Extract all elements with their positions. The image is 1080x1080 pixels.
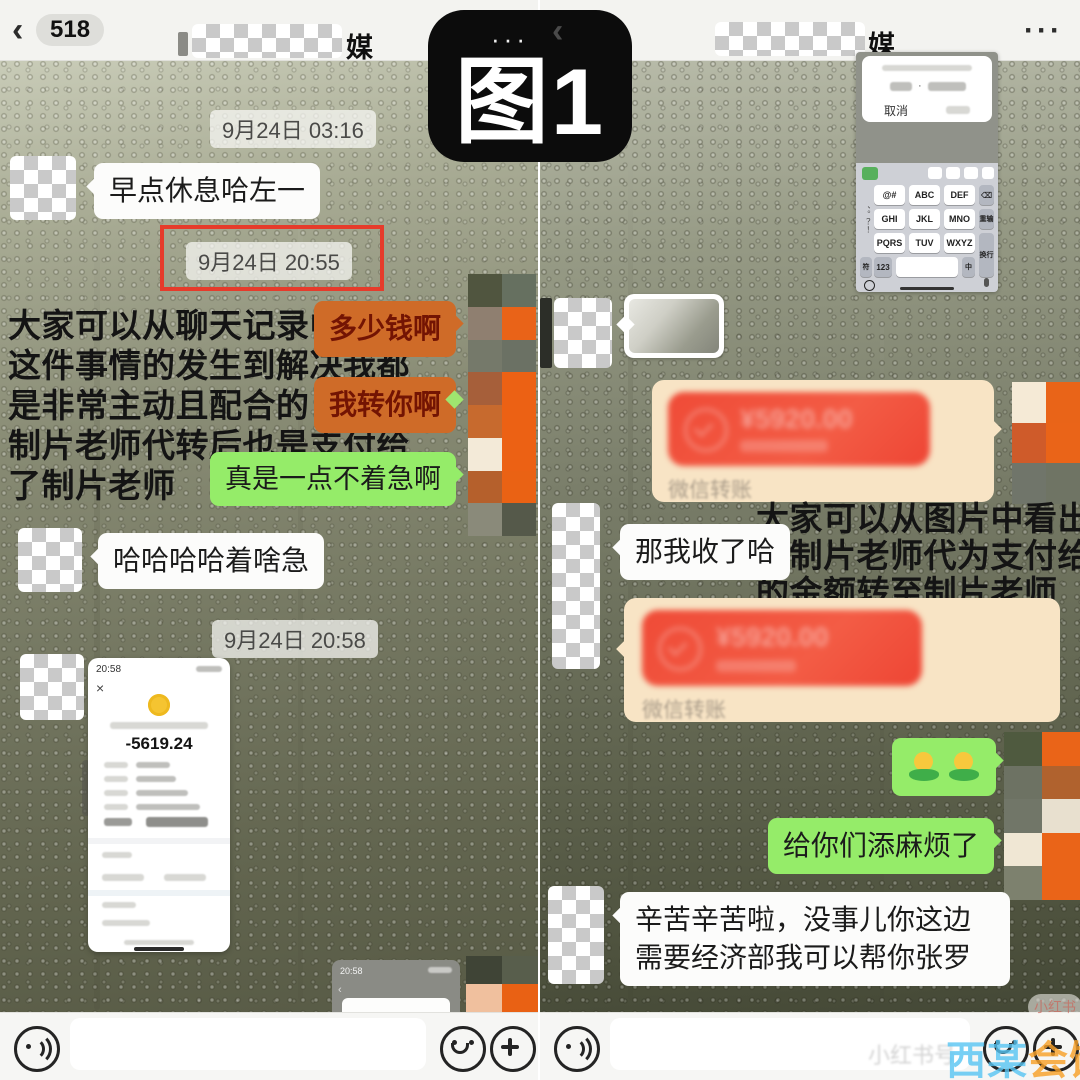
figure-label-badge: ··· 图1 xyxy=(428,10,632,162)
pixelated-avatar[interactable] xyxy=(466,956,538,1012)
detail-label-blurred xyxy=(104,818,132,826)
censored-edge xyxy=(540,298,552,368)
date-stamp: 9月24日 03:16 xyxy=(210,110,376,148)
dialog-text-blurred xyxy=(882,65,972,71)
punctuation-strip[interactable]: 、。？！ xyxy=(860,185,872,255)
detail-value-censored xyxy=(146,817,208,827)
bow-emoji xyxy=(907,750,941,784)
transfer-note-blurred xyxy=(740,440,828,452)
watermark-pill: 小红书 xyxy=(1028,994,1080,1020)
t9-keyboard: 、。？！ @# ABC DEF ⌫ GHI JKL MNO 重输 PQRS TU… xyxy=(856,163,998,292)
accessory-key[interactable] xyxy=(928,167,942,179)
message-bubble[interactable]: 哈哈哈哈着啥急 xyxy=(98,533,324,589)
payment-screenshot-message[interactable]: 20:58 × -5619.24 xyxy=(88,658,230,952)
dialog-value-blurred xyxy=(928,82,966,91)
payment-amount: -5619.24 xyxy=(88,734,230,754)
close-icon[interactable]: × xyxy=(96,680,104,696)
transfer-type-label: 微信转账 xyxy=(642,694,726,724)
message-bubble[interactable]: 给你们添麻烦了 xyxy=(768,818,994,874)
screenshot-content xyxy=(342,998,450,1012)
censored-avatar[interactable] xyxy=(554,298,612,368)
image-message-thumbnail[interactable] xyxy=(624,294,724,358)
section-label-blurred xyxy=(102,902,136,908)
message-text: 哈哈哈哈着啥急 xyxy=(113,545,309,576)
status-battery xyxy=(428,967,452,973)
date-stamp: 9月24日 20:58 xyxy=(212,620,378,658)
censor-red-blur: ¥5920.00 xyxy=(668,392,930,466)
home-indicator xyxy=(900,287,954,290)
detail-label-blurred xyxy=(104,762,128,768)
dialog-separator-dot: · xyxy=(918,80,922,92)
emoji-icon[interactable] xyxy=(440,1026,486,1072)
key-space[interactable] xyxy=(896,257,958,277)
pixelated-avatar[interactable] xyxy=(1012,382,1080,504)
message-bubble-highlighted[interactable]: 我转你啊 xyxy=(314,377,456,433)
confirm-button-blurred[interactable] xyxy=(946,106,970,114)
chat-title-suffix: 媒 xyxy=(346,26,373,65)
censored-avatar[interactable] xyxy=(20,654,84,720)
home-indicator xyxy=(134,947,184,951)
detail-label-blurred xyxy=(104,790,128,796)
key-def[interactable]: DEF xyxy=(944,185,975,205)
section-label-blurred xyxy=(102,852,132,858)
key-abc[interactable]: ABC xyxy=(909,185,940,205)
message-text: 给你们添麻烦了 xyxy=(783,830,979,861)
transfer-confirm-dialog: · 取消 xyxy=(862,56,992,122)
key-delete[interactable]: ⌫ xyxy=(979,185,994,205)
key-123[interactable]: 123 xyxy=(874,257,892,277)
annotation-text-right: 大家可以从图片中看出 我已 将制片老师代为支付给小馒 的金额转至制片老师 xyxy=(756,500,1080,611)
censored-avatar-column xyxy=(552,503,600,669)
transfer-type-label: 微信转账 xyxy=(668,474,752,504)
status-time: 20:58 xyxy=(96,664,121,675)
key-ghi[interactable]: GHI xyxy=(874,209,905,229)
more-actions-icon[interactable] xyxy=(490,1026,536,1072)
detail-value-blurred xyxy=(136,776,176,782)
option-blurred xyxy=(102,874,144,881)
censored-avatar[interactable] xyxy=(10,156,76,220)
message-bubble-highlighted[interactable]: 多少钱啊 xyxy=(314,301,456,357)
message-text: 真是一点不着急啊 xyxy=(225,464,441,494)
cancel-button[interactable]: 取消 xyxy=(884,102,908,119)
detail-value-blurred xyxy=(136,790,188,796)
transfer-note-blurred xyxy=(716,660,796,672)
mic-icon[interactable] xyxy=(984,278,989,287)
dialog-name-blurred xyxy=(890,82,912,91)
close-icon: ‹ xyxy=(338,984,342,996)
option-blurred xyxy=(164,874,206,881)
footer-blurred xyxy=(124,940,194,945)
message-text: 我转你啊 xyxy=(329,389,441,420)
key-symbol-page[interactable]: 符 xyxy=(860,257,872,277)
transfer-amount: ¥5920.00 xyxy=(740,404,853,435)
message-text: 辛苦辛苦啦，没事儿你这边需要经济部我可以帮你张罗 xyxy=(635,904,971,973)
message-bubble[interactable]: 那我收了哈 xyxy=(620,524,790,580)
status-battery xyxy=(196,666,222,672)
key-symbols[interactable]: @# xyxy=(874,185,905,205)
bow-emoji xyxy=(947,750,981,784)
section-divider xyxy=(88,838,230,844)
composite-screenshot: ‹ 518 媒 9月24日 03:16 早点休息哈左一 9月24日 20:55 … xyxy=(0,0,1080,1080)
row-blurred xyxy=(102,920,150,926)
transfer-amount: ¥5920.00 xyxy=(716,622,829,653)
payment-title-blurred xyxy=(110,722,208,729)
detail-value-blurred xyxy=(136,762,170,768)
detail-label-blurred xyxy=(104,804,128,810)
censor-red-blur: ¥5920.00 xyxy=(642,610,922,686)
voice-input-icon[interactable] xyxy=(14,1026,60,1072)
message-text: 早点休息哈左一 xyxy=(109,175,305,206)
emoji-message-bubble[interactable] xyxy=(892,738,996,796)
key-return[interactable]: 换行 xyxy=(979,233,994,277)
message-bubble[interactable]: 辛苦辛苦啦，没事儿你这边需要经济部我可以帮你张罗 xyxy=(620,892,1010,986)
more-menu-icon[interactable]: ··· xyxy=(1024,14,1063,48)
key-wxyz[interactable]: WXYZ xyxy=(944,233,975,253)
partial-title-character xyxy=(178,32,188,56)
section-divider xyxy=(88,890,230,896)
key-lang[interactable]: 中 xyxy=(962,257,975,277)
figure-label: 图1 xyxy=(428,55,632,149)
partial-screenshot-message[interactable]: 20:58 ‹ xyxy=(332,960,460,1012)
pixelated-avatar[interactable] xyxy=(468,274,536,536)
wechat-transfer-bubble[interactable]: ¥5920.00 微信转账 xyxy=(624,598,1060,722)
unread-count-badge[interactable]: 518 xyxy=(36,14,104,46)
back-icon[interactable]: ‹ xyxy=(552,14,563,48)
watermark-input-hint: 小红书号 xyxy=(868,1038,956,1070)
censored-avatar[interactable] xyxy=(548,886,604,984)
censored-avatar[interactable] xyxy=(18,528,82,592)
key-pqrs[interactable]: PQRS xyxy=(874,233,905,253)
censored-chat-title xyxy=(192,24,342,58)
censored-chat-title xyxy=(715,22,865,56)
status-time: 20:58 xyxy=(340,966,363,976)
watermark-site: 西某会馆 xyxy=(946,1028,1080,1080)
detail-value-blurred xyxy=(136,804,200,810)
pixelated-avatar[interactable] xyxy=(1004,732,1080,900)
key-reenter[interactable]: 重输 xyxy=(979,209,994,229)
accessory-key[interactable] xyxy=(946,167,960,179)
message-bubble[interactable]: 真是一点不着急啊 xyxy=(210,452,456,506)
detail-label-blurred xyxy=(104,776,128,782)
accessory-key[interactable] xyxy=(964,167,978,179)
message-text: 那我收了哈 xyxy=(635,536,775,567)
key-jkl[interactable]: JKL xyxy=(909,209,940,229)
globe-icon[interactable] xyxy=(864,280,875,291)
embedded-keyboard-screenshot: · 取消 、。？！ @# ABC DEF ⌫ GHI JKL MNO 重输 PQ… xyxy=(856,52,998,292)
key-mno[interactable]: MNO xyxy=(944,209,975,229)
accessory-key[interactable] xyxy=(982,167,994,179)
thumbnail-photo xyxy=(629,299,719,353)
message-input[interactable] xyxy=(70,1018,426,1070)
message-bubble[interactable]: 早点休息哈左一 xyxy=(94,163,320,219)
back-icon[interactable]: ‹ xyxy=(12,13,23,47)
message-text: 多少钱啊 xyxy=(329,313,441,344)
wechat-transfer-bubble[interactable]: ¥5920.00 微信转账 xyxy=(652,380,994,502)
key-tuv[interactable]: TUV xyxy=(909,233,940,253)
date-stamp: 9月24日 20:55 xyxy=(186,242,352,280)
voice-input-icon[interactable] xyxy=(554,1026,600,1072)
keyboard-lang-icon[interactable] xyxy=(862,167,878,180)
merchant-coin-icon xyxy=(148,694,170,716)
